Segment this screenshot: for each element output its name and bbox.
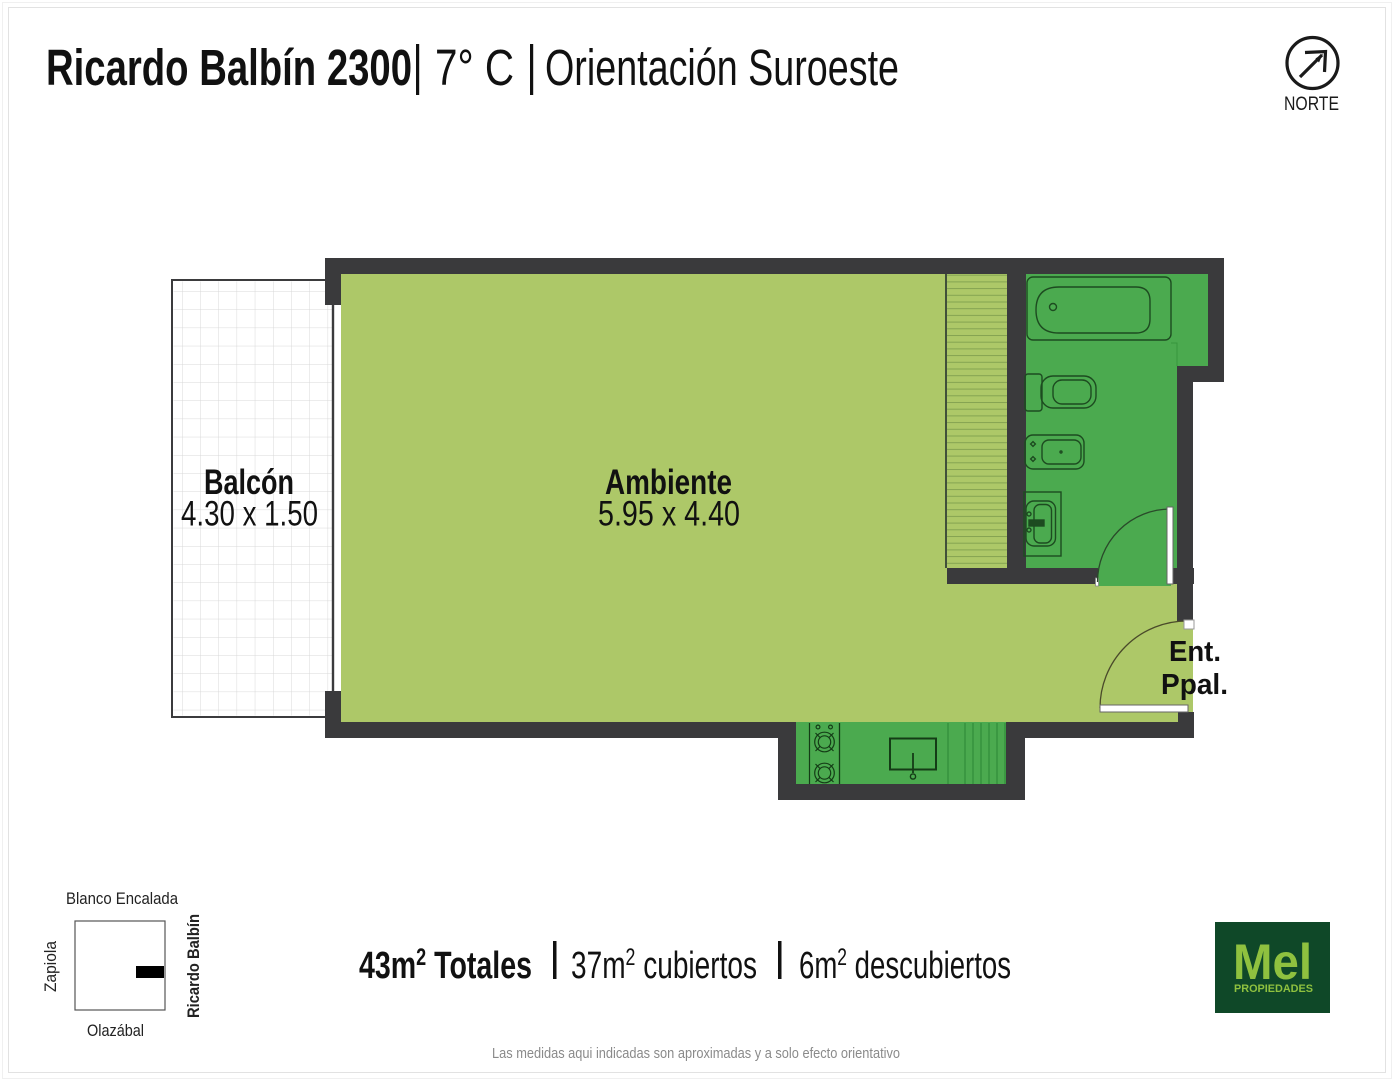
svg-text:Orientación Suroeste: Orientación Suroeste	[545, 39, 899, 96]
svg-text:PROPIEDADES: PROPIEDADES	[1234, 983, 1313, 995]
svg-text:Mel: Mel	[1233, 934, 1312, 990]
svg-text:6m2 descubiertos: 6m2 descubiertos	[799, 944, 1011, 987]
svg-text:Ppal.: Ppal.	[1161, 669, 1228, 701]
svg-text:4.30 x 1.50: 4.30 x 1.50	[181, 495, 318, 534]
svg-text:Ent.: Ent.	[1169, 636, 1221, 668]
svg-text:Blanco Encalada: Blanco Encalada	[66, 890, 179, 908]
svg-text:Ricardo Balbín: Ricardo Balbín	[185, 914, 203, 1018]
svg-text:37m2 cubiertos: 37m2 cubiertos	[571, 944, 757, 987]
svg-text:43m2 Totales: 43m2 Totales	[359, 944, 532, 987]
svg-text:NORTE: NORTE	[1284, 94, 1339, 115]
svg-text:5.95 x 4.40: 5.95 x 4.40	[598, 495, 740, 534]
svg-text:Olazábal: Olazábal	[87, 1022, 144, 1040]
svg-text:Ricardo Balbín 2300: Ricardo Balbín 2300	[46, 39, 412, 96]
svg-text:Las medidas aqui indicadas son: Las medidas aqui indicadas son aproximad…	[492, 1045, 900, 1062]
svg-text:7° C: 7° C	[435, 39, 514, 96]
svg-text:Zapiola: Zapiola	[42, 940, 60, 992]
